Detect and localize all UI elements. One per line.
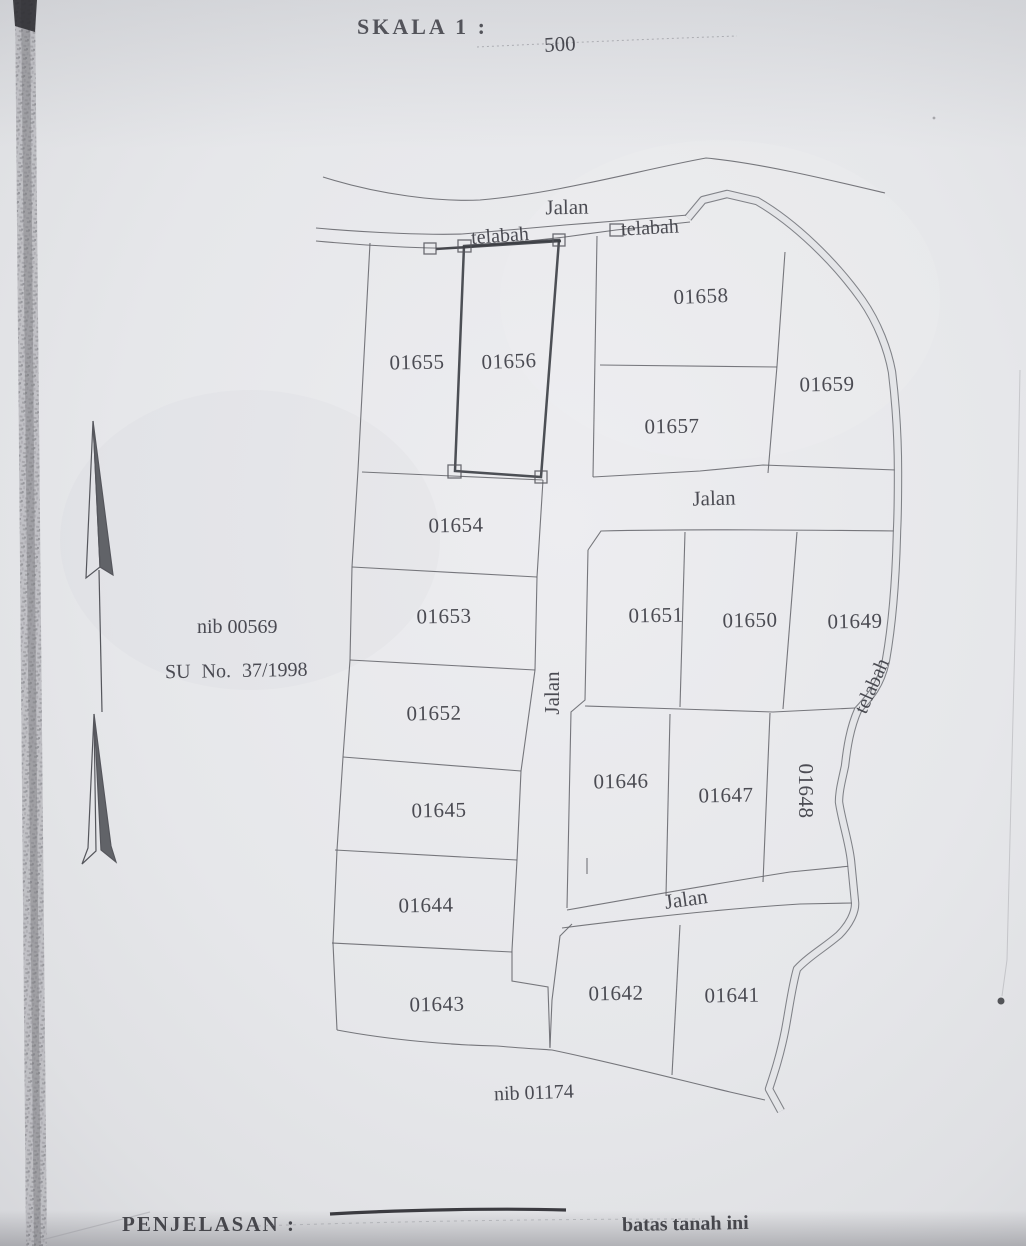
- parcel-label-01659: 01659: [799, 372, 854, 397]
- parcel-label-01645: 01645: [411, 798, 466, 823]
- paper-shading-blob: [60, 390, 440, 690]
- parcel-label-01650: 01650: [722, 608, 777, 633]
- parcel-label-01652: 01652: [406, 701, 461, 726]
- road-label-top: Jalan: [545, 195, 589, 220]
- survey-map: SKALA 1 : 500: [0, 0, 1026, 1246]
- road-label-middle: Jalan: [692, 485, 736, 510]
- survey-ref-label: SU No. 37/1998: [165, 659, 308, 683]
- parcel-label-01646: 01646: [593, 769, 648, 794]
- edge-dot: [998, 998, 1005, 1005]
- parcel-label-01648: 01648: [794, 764, 818, 819]
- parcel-label-01642: 01642: [588, 981, 643, 1006]
- nib-lower-label: nib 01174: [494, 1081, 575, 1106]
- parcel-label-01649: 01649: [827, 609, 882, 634]
- paper-speck: [933, 117, 936, 120]
- legend-label: PENJELASAN :: [122, 1212, 296, 1236]
- scale-label: SKALA 1 :: [357, 14, 488, 39]
- scale-value: 500: [544, 31, 577, 57]
- ditch-label-left: telabah: [470, 223, 529, 249]
- parcel-label-01653: 01653: [416, 604, 471, 629]
- parcel-label-01641: 01641: [704, 983, 759, 1008]
- parcel-label-01654: 01654: [428, 513, 483, 538]
- parcel-label-01657: 01657: [644, 414, 699, 439]
- ditch-label-right: telabah: [621, 216, 680, 241]
- road-label-vertical: Jalan: [540, 671, 564, 715]
- parcel-label-01651: 01651: [628, 603, 683, 628]
- parcel-label-01658: 01658: [673, 283, 729, 309]
- nib-upper-label: nib 00569: [197, 616, 278, 638]
- parcel-label-01643: 01643: [409, 992, 464, 1017]
- parcel-label-01655: 01655: [389, 350, 444, 375]
- legend-note: batas tanah ini: [622, 1212, 750, 1236]
- parcel-label-01656: 01656: [481, 348, 537, 374]
- parcel-label-01647: 01647: [698, 783, 753, 808]
- parcel-label-01644: 01644: [398, 893, 453, 918]
- scanned-survey-page: SKALA 1 : 500: [0, 0, 1026, 1246]
